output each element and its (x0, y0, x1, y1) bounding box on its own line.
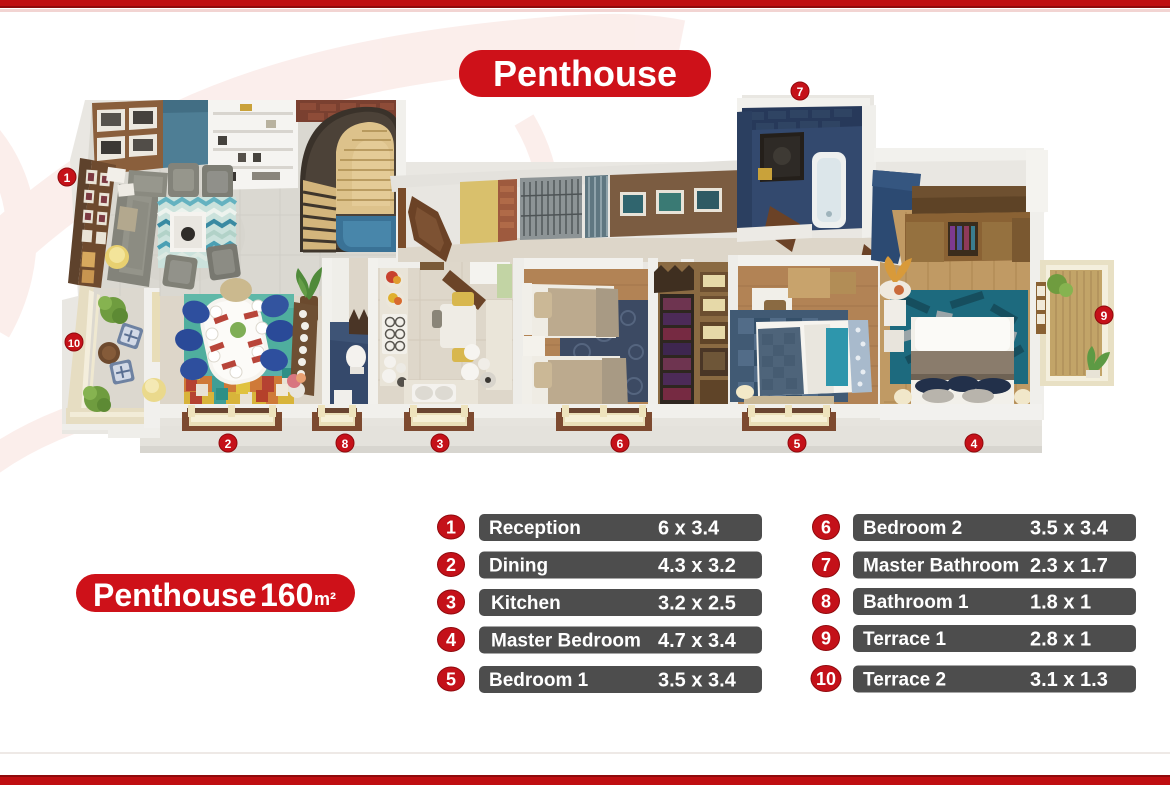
svg-text:8: 8 (821, 592, 831, 612)
svg-text:Master Bathroom: Master Bathroom (863, 556, 1019, 577)
svg-text:Reception: Reception (489, 518, 581, 539)
svg-text:7: 7 (821, 555, 831, 575)
svg-text:6: 6 (821, 518, 831, 538)
svg-text:Master Bedroom: Master Bedroom (491, 631, 641, 652)
svg-text:3.2 x 2.5: 3.2 x 2.5 (658, 593, 736, 615)
svg-text:Penthouse: Penthouse (93, 577, 257, 613)
svg-text:Bedroom 2: Bedroom 2 (863, 518, 962, 539)
svg-text:Bathroom 1: Bathroom 1 (863, 592, 969, 613)
svg-text:3.5 x 3.4: 3.5 x 3.4 (1030, 518, 1109, 540)
svg-text:3.1 x 1.3: 3.1 x 1.3 (1030, 669, 1108, 691)
svg-text:Penthouse: Penthouse (493, 53, 677, 94)
svg-text:4: 4 (446, 630, 456, 650)
svg-text:10: 10 (68, 338, 80, 350)
svg-text:10: 10 (816, 669, 836, 689)
svg-text:2: 2 (446, 555, 456, 575)
svg-text:2.3 x 1.7: 2.3 x 1.7 (1030, 555, 1108, 577)
svg-text:Bedroom 1: Bedroom 1 (489, 670, 589, 691)
svg-text:6 x 3.4: 6 x 3.4 (658, 518, 720, 540)
svg-text:Kitchen: Kitchen (491, 593, 561, 614)
svg-text:9: 9 (821, 629, 831, 649)
svg-text:160: 160 (260, 577, 313, 613)
svg-text:1.8 x 1: 1.8 x 1 (1030, 592, 1091, 614)
svg-text:4.3 x 3.2: 4.3 x 3.2 (658, 555, 736, 577)
svg-text:1: 1 (446, 518, 456, 538)
svg-text:Terrace 1: Terrace 1 (863, 629, 947, 650)
svg-text:5: 5 (794, 437, 801, 451)
svg-text:2.8 x 1: 2.8 x 1 (1030, 629, 1091, 651)
svg-text:4.7 x 3.4: 4.7 x 3.4 (658, 630, 737, 652)
svg-text:3: 3 (437, 437, 444, 451)
svg-text:7: 7 (797, 85, 804, 99)
svg-text:2: 2 (225, 437, 232, 451)
svg-text:Terrace 2: Terrace 2 (863, 670, 946, 691)
svg-text:1: 1 (64, 171, 71, 185)
svg-text:3: 3 (446, 593, 456, 613)
svg-text:Dining: Dining (489, 556, 548, 577)
svg-text:m²: m² (314, 589, 336, 609)
svg-text:3.5 x 3.4: 3.5 x 3.4 (658, 670, 737, 692)
svg-text:9: 9 (1101, 309, 1108, 323)
svg-text:6: 6 (617, 437, 624, 451)
svg-text:4: 4 (971, 437, 978, 451)
svg-text:8: 8 (342, 437, 349, 451)
svg-text:5: 5 (446, 670, 456, 690)
